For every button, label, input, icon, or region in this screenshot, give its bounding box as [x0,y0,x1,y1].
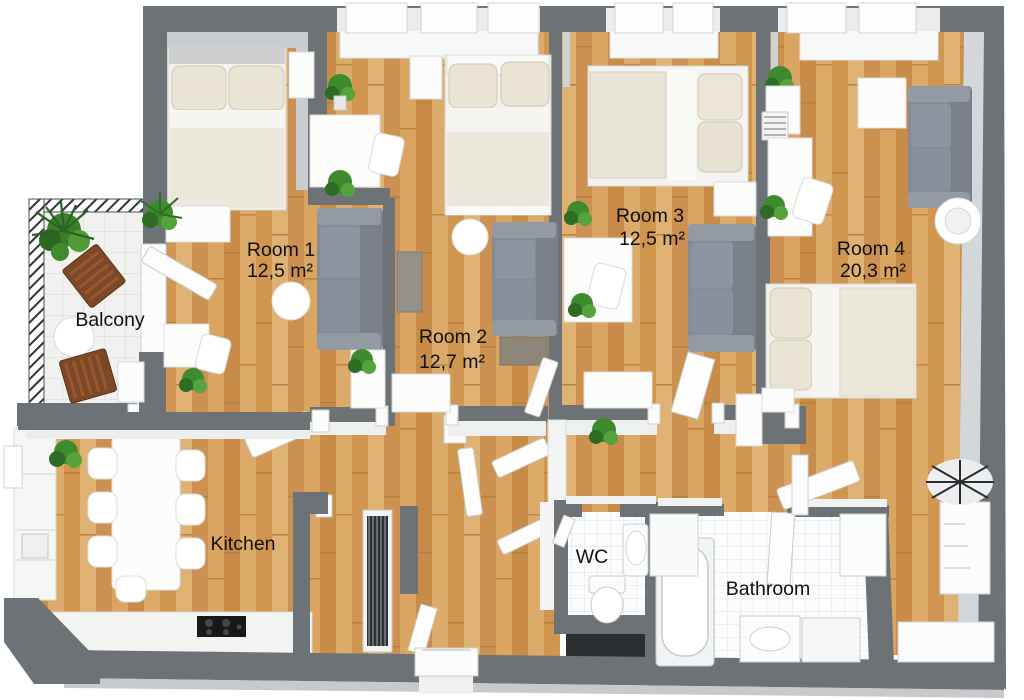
svg-text:12,7 m²: 12,7 m² [419,351,486,373]
svg-text:Kitchen: Kitchen [210,533,275,555]
svg-text:Room 1: Room 1 [247,239,315,261]
svg-text:Room 4: Room 4 [837,238,905,260]
svg-text:Balcony: Balcony [75,309,145,331]
svg-text:Room 3: Room 3 [616,205,684,227]
svg-text:WC: WC [576,546,609,568]
svg-text:12,5 m²: 12,5 m² [619,228,686,250]
svg-text:20,3 m²: 20,3 m² [840,260,907,282]
svg-text:12,5 m²: 12,5 m² [247,260,314,282]
svg-text:Room 2: Room 2 [419,326,487,348]
svg-text:Bathroom: Bathroom [726,578,811,600]
